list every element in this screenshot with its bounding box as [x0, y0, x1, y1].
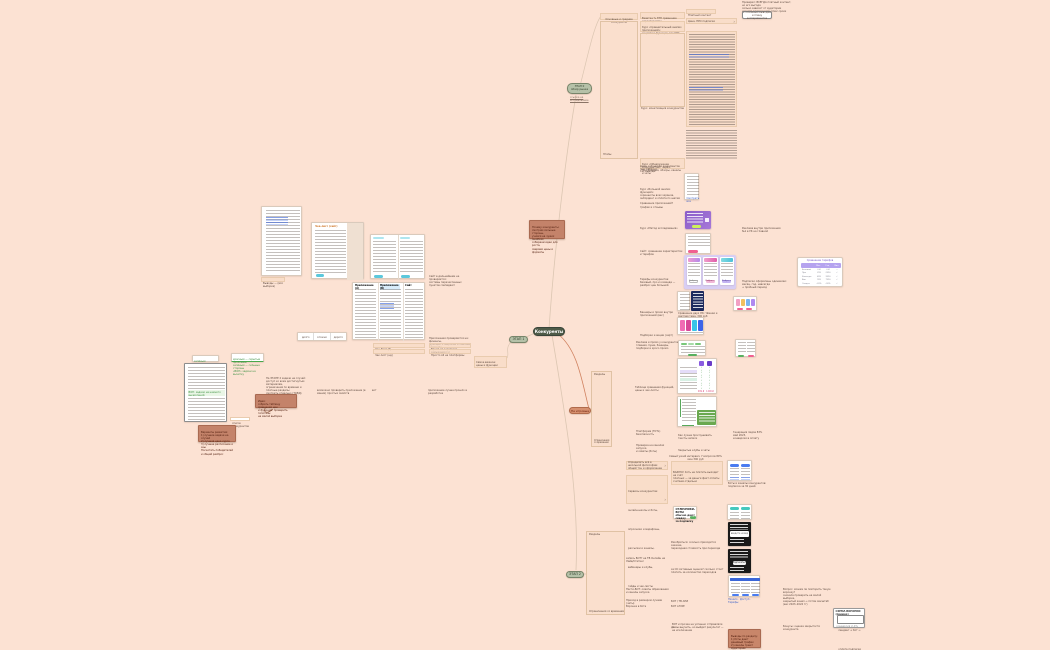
stage-top-label: ЭТАП 0 обзор рынка: [571, 86, 588, 92]
list-links-2: [689, 87, 723, 92]
sticky-why-competitors[interactable]: Почему конкуренты: смотрим сильные сторо…: [529, 220, 565, 239]
caption-bots-channels[interactable]: Боты и каналы конкурентов: подписка за 3…: [728, 482, 769, 488]
doc-pair-title-right: [400, 237, 410, 240]
pricing-row-labels: Базовый Про Команда Вип Скидка: [802, 269, 814, 286]
cell-paid-content[interactable]: Платный контент: [686, 9, 716, 14]
feature-highlight-1: [680, 370, 697, 373]
row-listen-texts[interactable]: Как лучше прослушивать тексты записи: [678, 434, 714, 440]
phone-screenshot-light[interactable]: [677, 291, 690, 311]
sticky-section-conclusions-text: Выводы по разделу: 1) боты дают дешёвый …: [731, 635, 758, 650]
doc-checklist-sidebar: [347, 223, 363, 280]
website-blue-btn-3[interactable]: [752, 594, 759, 596]
cell-comparison-visit[interactable]: Визитка % ЭТП сравнение характеристик: [640, 12, 685, 19]
dark-card-2-lines: [730, 551, 748, 559]
doc-green-underline: [682, 425, 694, 426]
sticky-section-conclusions[interactable]: Выводы по разделу: 1) боты дают дешёвый …: [728, 629, 761, 648]
ok-chip[interactable]: ОК: [690, 516, 696, 519]
screenshot-store-page[interactable]: [733, 296, 757, 311]
doc-competitor-green-band: ВОП: задачи на немного вычислений: [188, 390, 225, 396]
doc-checklist-lines: [315, 230, 346, 274]
central-node-label: Конкуренты: [535, 329, 563, 334]
website-col-2: [741, 583, 750, 593]
bracket-sections-bottom[interactable]: Разделы Ограничения со временем: [586, 531, 625, 615]
pricing-table-card[interactable]: Сравнение тарифов Мес Год Вип Базовый Пр…: [797, 257, 843, 287]
chevron-right-icon-2[interactable]: ›: [664, 463, 666, 468]
checkmarks-col-1: ✓ ✓ ✓ ✓ ✓ ✓ ✓ ✓ ✓: [699, 367, 704, 390]
promo-tile-cyan: [692, 320, 698, 331]
channels-teal-lines-1: [730, 512, 739, 519]
comparison-table-large[interactable]: Приложение (А) Приложение (Б) Сайт: [352, 282, 425, 340]
stage-top-link[interactable]: ссылка на исследование: [570, 96, 600, 102]
dark-card-1-lines: [730, 524, 748, 530]
store-thumb-2: [741, 299, 745, 306]
pricing-card-3-button[interactable]: Выбрать: [722, 280, 731, 283]
green-table-lines: [681, 346, 705, 353]
blue-chip-2[interactable]: [741, 464, 750, 467]
pricing-table-header: Мес Год Вип: [801, 263, 841, 268]
cell-price-subscriptions[interactable]: Цена, ПРО подписки ›: [686, 18, 737, 24]
pricing-card-2-button[interactable]: Выбрать: [706, 280, 715, 283]
pricing-col-h2: Год: [823, 265, 832, 267]
bracket-sections-mid-label: Разделы: [594, 373, 605, 376]
doc-green-bar: [680, 399, 682, 417]
website-header-band: [730, 578, 760, 582]
promo-tile-magenta: [686, 320, 692, 331]
row-bot-an-be[interactable]: БОТ АН БЕ: [671, 605, 702, 608]
bracket-stages[interactable]: Этапы: [600, 21, 638, 159]
note-repeat-funnel[interactable]: Вопрос: можем ли повторить такую воронку…: [783, 588, 831, 606]
cell-important-payment[interactable]: ВАЖНО! Хоть не платить выходит на счёт п…: [671, 461, 723, 485]
button-to-conclusions-text: к основным выводам и плану экспериментов: [743, 11, 771, 20]
box-key-facts[interactable]: Самое важное: цены и функции: [474, 356, 507, 368]
box-key-facts-text: Самое важное: цены и функции: [476, 361, 498, 367]
note-leadgen[interactable]: Генерация лидов 83% май 2023, конверсия …: [733, 431, 773, 440]
store-thumb-3: [746, 299, 750, 306]
row-closed-clubs[interactable]: Закрытые клубы и чаты: [678, 449, 718, 452]
links-website[interactable]: Начало · Доступ · Тарифы: [728, 598, 760, 604]
dark-card-2-lines-2: [730, 567, 744, 571]
pricing-card-1-button[interactable]: Выбрать: [689, 280, 698, 283]
table-col2-lines: [380, 289, 401, 338]
pricing-card-2-lines: [704, 263, 717, 277]
pricing-card-1-button-text: Выбрать: [689, 280, 698, 282]
connector-lines: [0, 0, 1050, 650]
cell-main-competitors[interactable]: Основные и средние конкуренты: [600, 13, 638, 20]
mindmap-canvas[interactable]: Конкуренты ЭТАП 1 ЭТАП 0 обзор рынка ссы…: [0, 0, 1050, 650]
screenshot-channels-teal[interactable]: [727, 504, 752, 520]
pricing-card-3: Выбрать: [720, 257, 735, 285]
channels-blue-links-1: [730, 477, 739, 480]
pricing-card-2-button-text: Выбрать: [705, 280, 714, 282]
cell-important-payment-text: ВАЖНО! Хоть не платить выходит на счёт п…: [673, 471, 722, 483]
teal-chip-2[interactable]: [741, 507, 750, 510]
table-links: [380, 303, 394, 309]
banner-purple-card[interactable]: [685, 211, 711, 229]
screenshot-green-apps[interactable]: [735, 339, 756, 357]
doc-conclusions-links: [266, 217, 288, 225]
chevron-right-icon[interactable]: ›: [733, 19, 735, 24]
cell-competitor-services[interactable]: Сервисы конкурентов: онлайн-школы и боты…: [626, 475, 668, 504]
website-col-1: [731, 583, 740, 593]
text-tariffs[interactable]: Тарифы конкурентов: базовый, про и коман…: [640, 278, 683, 287]
row-launch-channels[interactable]: Проверка на каналах запуска и охваты (бо…: [636, 444, 675, 453]
doc-checklist-button[interactable]: [316, 274, 324, 277]
strip-cell-3: дорого: [331, 333, 346, 340]
row-method-course[interactable]: Курс «Метод исследования»: [640, 227, 685, 230]
row-app-comparison[interactable]: Сравнение приложений?: [640, 202, 685, 205]
list-lines: [689, 34, 735, 125]
green-sticky-b[interactable]: красным — скрытые проблемы, зелёным — си…: [231, 353, 264, 362]
stage-pill-side[interactable]: Не игровые: [569, 407, 591, 414]
pricing-card-2-header: [704, 258, 717, 262]
doc-green-block-lines: [699, 412, 715, 423]
green-chip-b: [748, 355, 754, 357]
note-bonuses[interactable]: Бонусы: оценка закрытости конкурента: [783, 625, 820, 631]
note-in-app-ads[interactable]: Реклама внутри приложения №1 в УК на гла…: [742, 227, 784, 233]
store-button-2[interactable]: [746, 308, 752, 310]
pricing-card-2: Выбрать: [703, 257, 718, 285]
micro-row-1[interactable]: возможно проверить приложение (в мании) …: [317, 389, 370, 395]
banner-purple-button[interactable]: [692, 225, 701, 228]
doc-green-lines: [682, 399, 696, 423]
green-pill-3: [695, 343, 701, 345]
text-ads-promo[interactable]: Реклама и промо у конкурентов: главная, …: [636, 341, 681, 350]
doc-conclusions-caption[interactable]: Выводы — (вся выборка): [261, 277, 285, 282]
chevron-right-icon-3[interactable]: ›: [664, 497, 666, 502]
blue-chip-1[interactable]: [730, 464, 739, 467]
row-traffic-reviews[interactable]: трафик и отзывы: [640, 206, 680, 209]
screenshot-paywall-button[interactable]: [688, 250, 698, 254]
row-site-comparison[interactable]: Сайт: сравнение характеристик и тарифов: [640, 250, 685, 256]
green-sticky-a[interactable]: зелёным выделено то, что можно переиспол…: [192, 355, 219, 362]
price-compare-1: 999 ₽: [697, 391, 705, 394]
stage-pill-left[interactable]: ЭТАП 1: [509, 336, 528, 343]
row-checklist-nd[interactable]: Чек лист (нд): [373, 349, 425, 354]
doc-competitor-green-text: ВОП: задачи на немного вычислений: [188, 390, 225, 397]
promo-tile-pink: [680, 320, 686, 331]
table-divider-1: [378, 283, 379, 341]
green-chip-a: [738, 355, 744, 357]
checkmarks-col-2: ✓ ✓ ✓ ✓ ✓ ✓ ✓ ✓ ✓: [707, 367, 712, 390]
ok-chip-text: ОК: [692, 516, 695, 518]
row-banners-promo[interactable]: Баннеры и промо внутри приложений (вес): [640, 311, 683, 317]
cell-define-style[interactable]: Определить всё в школьной философии: общ…: [626, 461, 668, 470]
pricing-card-1: Выбрать: [687, 257, 702, 285]
dark-card-1-lines-2: [730, 539, 744, 544]
screenshot-website-wide[interactable]: [728, 575, 760, 597]
screenshot-green-table[interactable]: [678, 340, 706, 356]
doc-checklist-title: Чек-лист (сайт): [315, 225, 345, 228]
phone-dark-lines: [693, 293, 703, 309]
block-course-functions[interactable]: Курс «Большой анализ функций»: скриншоты…: [640, 188, 685, 200]
doc-competitor-lines-bottom: [188, 398, 225, 420]
cell-paid-content-text: Платный контент: [688, 14, 711, 17]
channels-blue-lines-2: [741, 468, 750, 476]
pricing-card-3-header: [721, 258, 734, 262]
row-checklist-b[interactable]: Чек Лист (б): [373, 343, 425, 348]
card-funnel-scheme[interactable]: СХЕМА ВОРОНКИ (пример) лендинг → бот → о…: [833, 608, 865, 628]
pricing-col-2: 0 ₽ 2390 3990 7990 -30%: [824, 269, 832, 286]
sticky-idea[interactable]: Идея: собрать таблицу сравнения цен и фу…: [255, 394, 297, 408]
doc-pair-lines-right: [400, 241, 423, 273]
store-button-1[interactable]: [737, 308, 743, 310]
pricing-card-3-lines: [721, 263, 734, 277]
dark-card-subscribe-2[interactable]: Подписаться: [728, 549, 751, 573]
app-icon-2: [707, 361, 712, 366]
pricing-cards-screenshot[interactable]: Выбрать Выбрать Выбрать: [684, 255, 736, 289]
channels-blue-links-2: [741, 477, 750, 480]
store-thumb-1: [736, 299, 740, 306]
doc-pair-title-left: [373, 237, 384, 240]
row-checklist-nd-right-text: Просто All на платформы: [431, 354, 464, 357]
green-apps-lines: [738, 342, 746, 354]
note-subscriptions[interactable]: Подписки оформлены одинаково: месяц, год…: [742, 280, 791, 289]
pricing-table-title: Сравнение тарифов: [798, 259, 842, 262]
bracket-sections-mid-limit: Ограничения со временем: [594, 440, 611, 446]
website-blue-btn-1[interactable]: [732, 594, 739, 596]
bracket-stages-label: Этапы: [603, 153, 611, 156]
table-header-col3: Сайт: [405, 284, 423, 287]
screenshot-app-list-lines: [687, 176, 699, 196]
doc-pair[interactable]: [370, 234, 425, 279]
doc-competitor-lines-top: [188, 367, 225, 389]
pricing-card-1-header: [688, 258, 701, 262]
list-paid-content-details[interactable]: [686, 31, 737, 127]
bracket-sections-mid[interactable]: Разделы Ограничения со временем: [591, 371, 612, 447]
text-stage2-tasks[interactable]: На ЭТАПЕ 2 задачи на случай: доступ ко в…: [266, 377, 313, 395]
row-checklist-nd-right[interactable]: Просто All на платформы: [429, 349, 471, 354]
card-bot-discount[interactable]: ОТЛИЧНИКИ-БОТЫ обычно дают скидку за под…: [673, 506, 697, 519]
bracket-sections-bottom-label: Разделы: [589, 533, 600, 536]
screenshot-channels-blue[interactable]: [727, 460, 752, 481]
green-apps-lines2: [747, 342, 755, 354]
banner-purple-thumb: [705, 218, 709, 222]
channels-blue-lines-1: [730, 468, 739, 476]
row-checklist-nd-text: Чек лист (нд): [375, 354, 393, 357]
row-collections[interactable]: Подборки и акции (чарт): [640, 334, 683, 337]
doc-checklist-site[interactable]: Чек-лист (сайт): [311, 222, 364, 279]
doc-pair-lines-left: [373, 241, 396, 273]
row-checklist-b-right[interactable]: Время от короткого замыкания (ч): [429, 343, 471, 348]
promo-tile-blue: [698, 320, 704, 331]
store-thumb-4: [751, 299, 755, 306]
card-funnel-inner-box: лендинг → бот → оплата подписки в два ша…: [837, 615, 864, 624]
list-links-1: [689, 54, 729, 59]
caption-comparison[interactable]: Таблица сравнения функций, цены и чек-ли…: [635, 386, 676, 392]
screenshot-app-list-link[interactable]: Смотреть все: [687, 197, 699, 203]
row-see-conclusions[interactable]: См. выводы: [640, 170, 683, 173]
pricing-card-3-button-text: Выбрать: [722, 280, 731, 282]
caption-bot-results[interactable]: ВОТ и прочие не успешно отправляли темы …: [672, 623, 726, 632]
green-pill-1: [681, 343, 687, 345]
doc-competitor-list[interactable]: ВОП: задачи на немного вычислений: [184, 363, 227, 422]
dark-card-subscribe-1[interactable]: введите номер: [728, 522, 751, 546]
cell-define-style-text: Определить всё в школьной философии: общ…: [628, 461, 664, 470]
cell-course-monetization-label[interactable]: Курс: монетизация конкурентов: [641, 107, 685, 110]
table-col1-lines: [355, 289, 376, 338]
price-compare-2: 1290 ₽: [706, 391, 714, 394]
row-nastya-bot[interactable]: Насти-БОТ: охваты образования и каналы з…: [626, 588, 669, 594]
stage-side-label: Не игровые: [571, 409, 589, 413]
list-paid-content-extra[interactable]: [686, 130, 737, 160]
row-bot-tv-ani[interactable]: БОТ / ТВ АНИ: [671, 600, 702, 603]
micro-row-2[interactable]: вот: [372, 389, 382, 392]
phone-screenshot-dark[interactable]: [691, 291, 704, 311]
note-site-skip[interactable]: Сайт в дальнейшем не проверяется: систем…: [429, 275, 471, 287]
app-icon-1: [699, 361, 704, 366]
dark-card-1-input[interactable]: введите номер: [730, 531, 749, 537]
pricing-col-1: 0 ₽ 299 499 999 -20%: [815, 269, 823, 286]
banner-purple-lines: [687, 213, 703, 223]
micro-row-3[interactable]: приложение лучше прошло в разработке: [428, 389, 469, 395]
table-col3-lines: [405, 289, 423, 338]
stage-bottom-label: ЭТАП 2: [569, 573, 581, 577]
pricing-col-3: — ✓ ✓ ✓ ✓: [833, 269, 841, 286]
screenshot-promo-banner[interactable]: [677, 317, 704, 335]
green-table-button[interactable]: [688, 354, 697, 357]
table-divider-2: [403, 283, 404, 341]
strip-cell-1: долго: [298, 333, 314, 340]
cell-course-monetization[interactable]: [640, 33, 685, 107]
stage-pill-bottom[interactable]: ЭТАП 2: [566, 571, 584, 578]
bracket-sections-bottom-limit: Ограничения со временем: [589, 610, 624, 613]
row-platform-safety[interactable]: Платформа (TOTL) безопасность: [636, 430, 675, 436]
doc-green-block: [697, 410, 716, 425]
doc-pair-button-right[interactable]: [401, 275, 410, 278]
channels-teal-lines-2: [741, 512, 750, 519]
row-bot-tv[interactable]: запись БОТ? на ТВ Онлайн на Лайв/Статикс: [626, 557, 669, 563]
sticky-variants[interactable]: Варианты развития: 1) лучшие задачи на с…: [198, 425, 236, 442]
pricing-col-h3: Вип: [832, 265, 841, 267]
screenshot-paywall[interactable]: [685, 233, 711, 254]
dark-card-2-button-text: Подписаться: [732, 562, 747, 564]
stage-pill-top[interactable]: ЭТАП 0 обзор рынка: [567, 83, 592, 94]
button-to-conclusions[interactable]: к основным выводам и плану экспериментов: [742, 11, 772, 19]
strip-table[interactable]: долго сложно дорого: [297, 332, 347, 341]
strip-cell-2: сложно: [314, 333, 330, 340]
phone-light-lines: [680, 294, 690, 310]
card-funnel-foot: конверсия 2–4%: [837, 625, 863, 628]
stage-left-label: ЭТАП 1: [513, 338, 525, 342]
green-pill-2: [688, 343, 694, 345]
sticky-variants-text: Варианты развития: 1) лучшие задачи на с…: [201, 431, 233, 456]
teal-chip-1[interactable]: [730, 507, 739, 510]
doc-pair-button-left[interactable]: [374, 275, 383, 278]
dark-card-2-button[interactable]: Подписаться: [733, 561, 746, 565]
feature-comparison-table[interactable]: ✓ ✓ ✓ ✓ ✓ ✓ ✓ ✓ ✓ ✓ ✓ ✓ ✓ ✓ ✓ ✓ ✓ ✓ 999 …: [677, 358, 717, 394]
central-node[interactable]: Конкуренты: [533, 327, 565, 336]
row-bot-funnel[interactable]: Воронка в боте: [626, 605, 669, 608]
pricing-card-1-lines: [688, 263, 701, 277]
screenshot-paywall-lines: [688, 236, 710, 248]
doc-conclusions[interactable]: [261, 206, 302, 276]
dark-card-1-input-text: введите номер: [731, 533, 748, 536]
cell-course-analysis[interactable]: Курс «Сравнительный анализ приложений»: …: [640, 21, 685, 32]
doc-pair-divider: [398, 235, 399, 280]
pricing-col-h1: Мес: [814, 265, 823, 267]
note-active-ratings[interactable]: за ОС Активные оценки? сколько стоит пла…: [671, 568, 724, 574]
screenshot-app-list[interactable]: Смотреть все: [684, 173, 699, 200]
cell-price-subscriptions-text: Цена, ПРО подписки: [688, 20, 715, 23]
doc-competitor-caption[interactable]: список конкурентов: [230, 417, 250, 421]
feature-highlight-2: [680, 378, 697, 381]
note-transition-cost[interactable]: Разобраться: сколько приходится закачек,…: [671, 541, 724, 550]
website-col-3: [751, 583, 760, 593]
doc-green-report[interactable]: [677, 396, 717, 427]
website-blue-btn-2[interactable]: [742, 594, 749, 596]
